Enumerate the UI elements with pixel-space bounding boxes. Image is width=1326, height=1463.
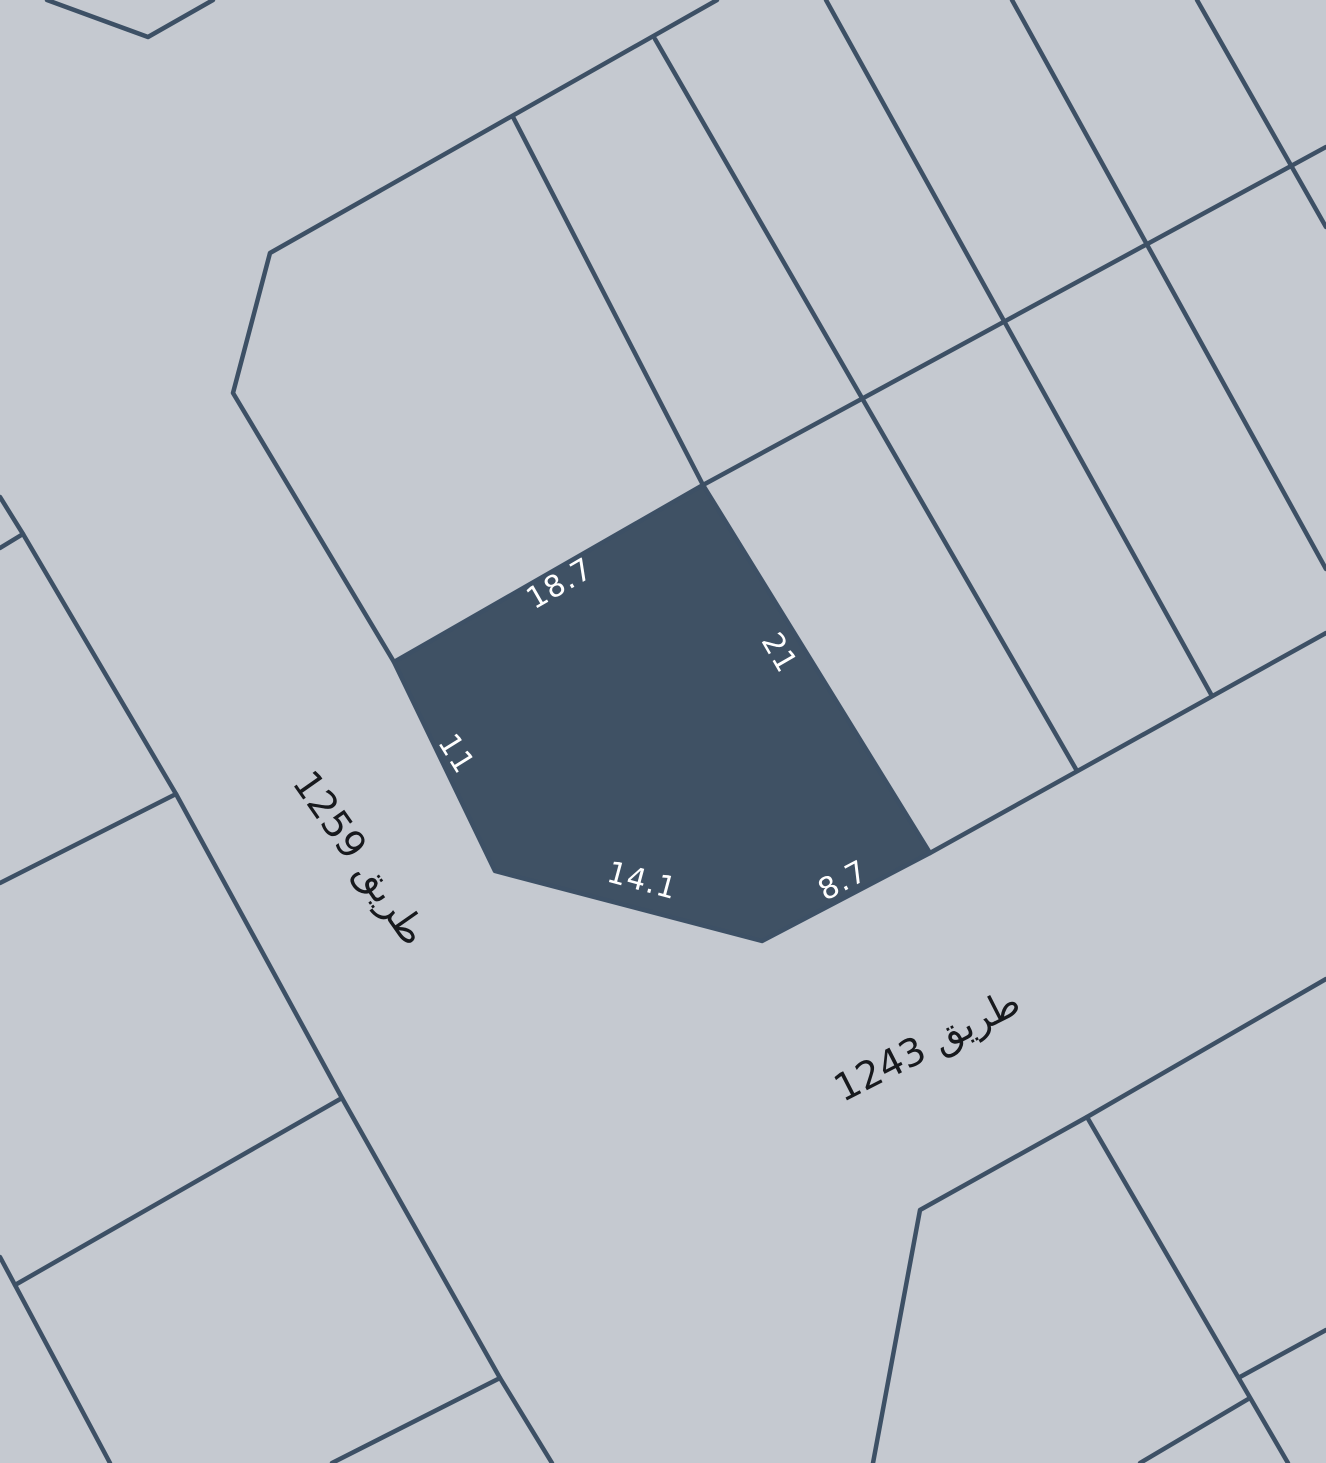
- boundary-line-divider-2: [826, 0, 1212, 696]
- boundary-line-upper-boundary-east: [703, 147, 1326, 485]
- boundary-line-top-left-corner-v: [47, 0, 213, 37]
- boundary-line-west-divider-2: [15, 1098, 342, 1285]
- boundary-line-west-divider-3: [332, 1378, 500, 1463]
- boundary-line-road-1243-north-edge: [930, 633, 1326, 853]
- boundary-line-west-corner-divider: [0, 534, 23, 548]
- boundary-line-far-west-block-edge: [0, 1257, 110, 1463]
- boundary-line-divider-3: [1012, 0, 1326, 569]
- boundary-line-divider-4: [1197, 0, 1326, 227]
- boundary-line-se-block-divider: [1087, 1117, 1288, 1463]
- boundary-line-se-branch-northeast: [1240, 1330, 1326, 1377]
- street-label-road-1243: طريق 1243: [827, 979, 1028, 1111]
- cadastral-map: 18.7 21 11 14.1 8.7 طريق 1259 طريق 1243: [0, 0, 1326, 1463]
- street-label-road-1259: طريق 1259: [283, 763, 436, 955]
- map-canvas[interactable]: 18.7 21 11 14.1 8.7 طريق 1259 طريق 1243: [0, 0, 1326, 1463]
- boundary-line-se-branch-southwest: [1140, 1398, 1250, 1463]
- boundary-line-west-divider-1: [0, 794, 176, 883]
- boundary-line-upper-nw-divider: [513, 117, 703, 485]
